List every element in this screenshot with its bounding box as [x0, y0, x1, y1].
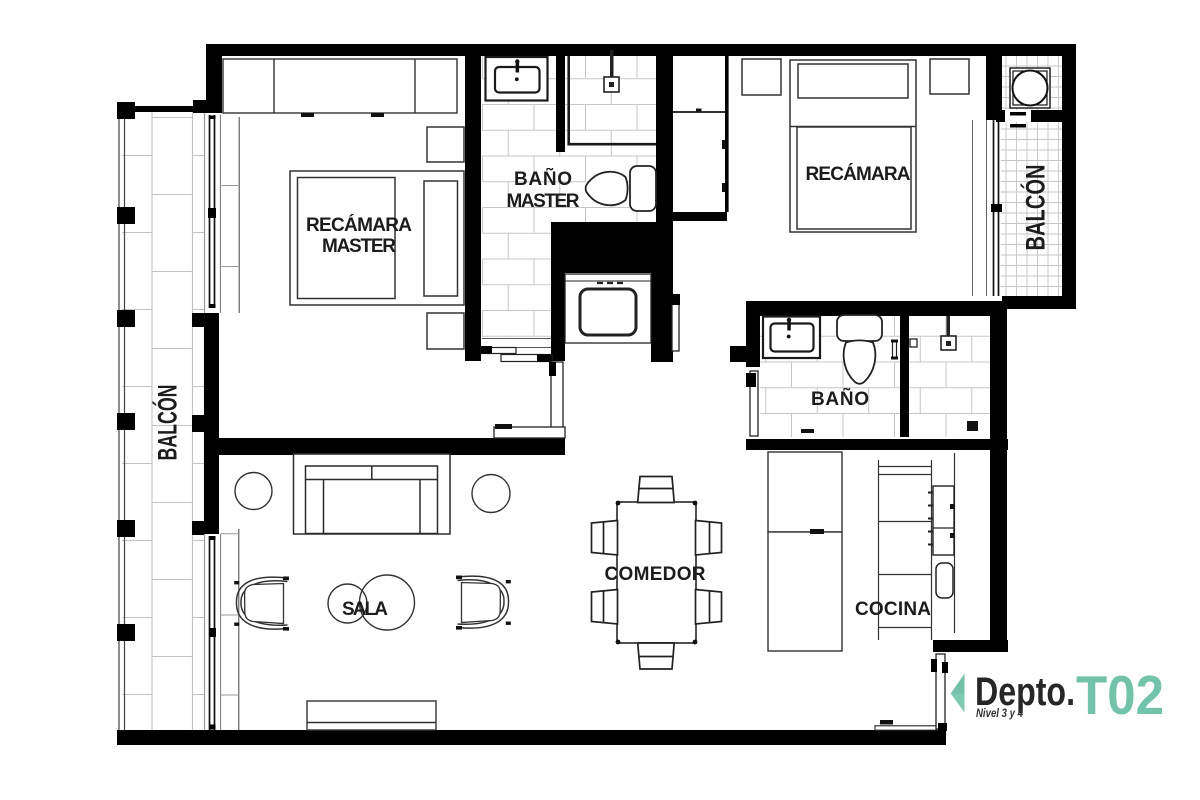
svg-text:RECÁMARA: RECÁMARA — [306, 214, 412, 236]
svg-text:COCINA: COCINA — [855, 599, 931, 620]
svg-text:MASTER: MASTER — [322, 236, 396, 257]
svg-text:BAÑO: BAÑO — [514, 168, 572, 190]
svg-text:RECÁMARA: RECÁMARA — [806, 163, 911, 185]
svg-text:COMEDOR: COMEDOR — [605, 564, 706, 585]
svg-text:MASTER: MASTER — [507, 191, 580, 212]
svg-text:T02: T02 — [1076, 664, 1164, 726]
svg-text:BAÑO: BAÑO — [811, 388, 869, 410]
svg-text:BALCÓN: BALCÓN — [1020, 165, 1051, 251]
svg-text:Nivel 3 y 4: Nivel 3 y 4 — [976, 708, 1023, 720]
svg-text:SALA: SALA — [342, 599, 388, 620]
svg-text:BALCÓN: BALCÓN — [152, 385, 183, 461]
